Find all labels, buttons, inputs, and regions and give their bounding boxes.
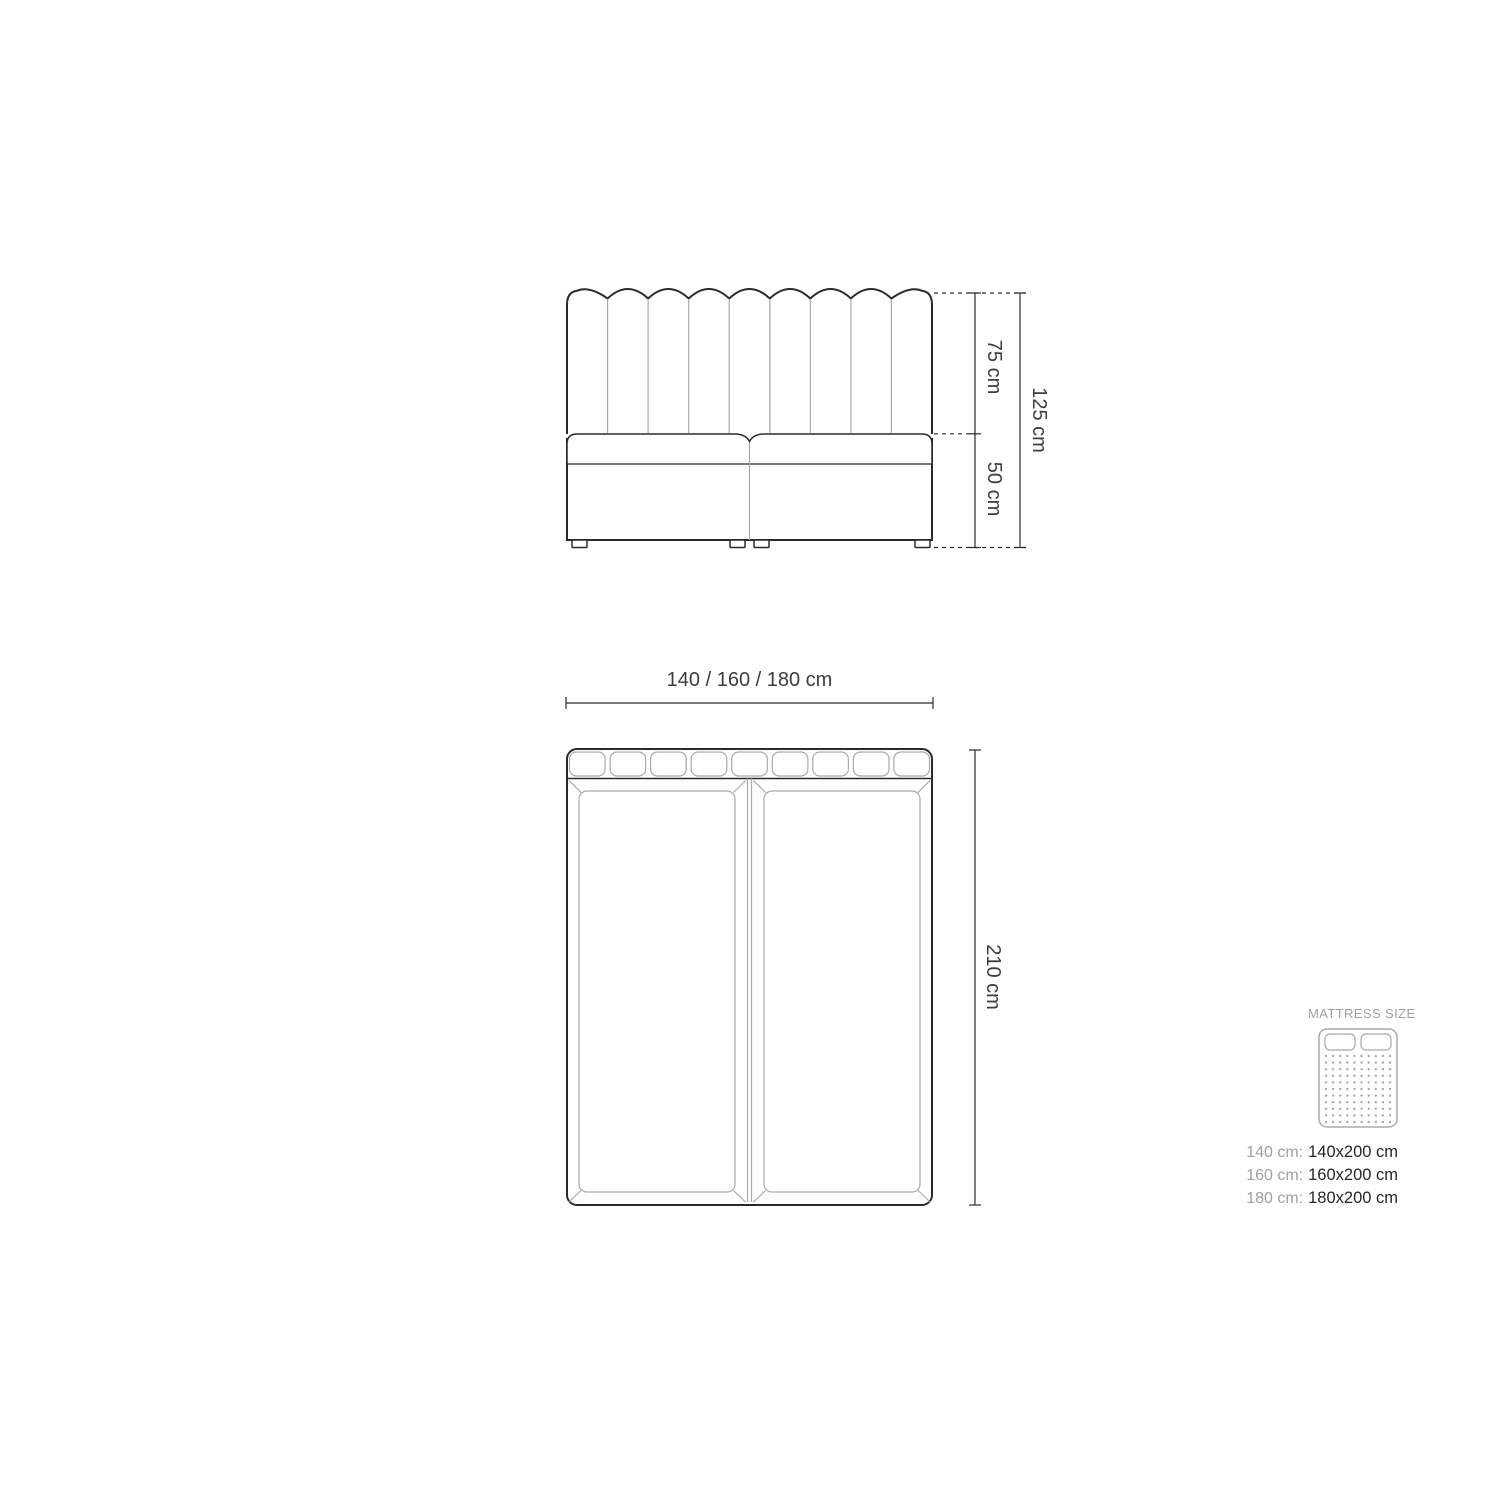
mattress-size-title: MATTRESS SIZE: [1308, 1006, 1408, 1021]
base-height-label: 50 cm: [983, 462, 1005, 516]
top-plan-view: 140 / 160 / 180 cm: [566, 669, 1004, 1205]
foot-center-right: [754, 540, 769, 548]
headboard-front-outline: [567, 289, 932, 434]
width-label: 140 / 160 / 180 cm: [667, 669, 833, 691]
front-elevation-view: 75 cm 50 cm 125 cm: [567, 289, 1050, 548]
mattress-size-list: 140 cm: 140x200 cm 160 cm: 160x200 cm 18…: [1246, 1143, 1398, 1208]
bed-feet: [572, 540, 930, 548]
depth-label: 210 cm: [982, 944, 1004, 1010]
size-option-label: 140 cm:: [1246, 1143, 1303, 1162]
extension-lines: [934, 293, 1026, 548]
mattress-icon: [1318, 1028, 1398, 1128]
headboard-height-label: 75 cm: [983, 340, 1005, 394]
foot-center-left: [730, 540, 745, 548]
mattress-size-row: 140 cm: 140x200 cm: [1246, 1143, 1398, 1162]
technical-drawing: 75 cm 50 cm 125 cm 140 / 160 / 180 cm: [0, 0, 1500, 1500]
mattress-size-row: 160 cm: 160x200 cm: [1246, 1166, 1398, 1185]
foot-left: [572, 540, 587, 548]
total-height-label: 125 cm: [1028, 387, 1050, 453]
size-option-value: 140x200 cm: [1308, 1143, 1398, 1162]
height-segment-dimension-line: [969, 293, 981, 548]
plan-outer-outline: [567, 749, 932, 1205]
total-height-dimension-line: [1014, 293, 1026, 548]
pillow-right-icon: [1361, 1034, 1391, 1050]
bed-dimension-diagram: 75 cm 50 cm 125 cm 140 / 160 / 180 cm: [0, 0, 1500, 1500]
size-option-label: 160 cm:: [1246, 1166, 1303, 1185]
size-option-value: 160x200 cm: [1308, 1166, 1398, 1185]
mattress-tufting-dots: [1325, 1055, 1391, 1123]
size-option-label: 180 cm:: [1246, 1189, 1303, 1208]
mattress-size-row: 180 cm: 180x200 cm: [1246, 1189, 1398, 1208]
depth-dimension-line: [969, 750, 981, 1205]
foot-right: [915, 540, 930, 548]
size-option-value: 180x200 cm: [1308, 1189, 1398, 1208]
pillow-left-icon: [1325, 1034, 1355, 1050]
width-dimension-line: [566, 697, 933, 709]
